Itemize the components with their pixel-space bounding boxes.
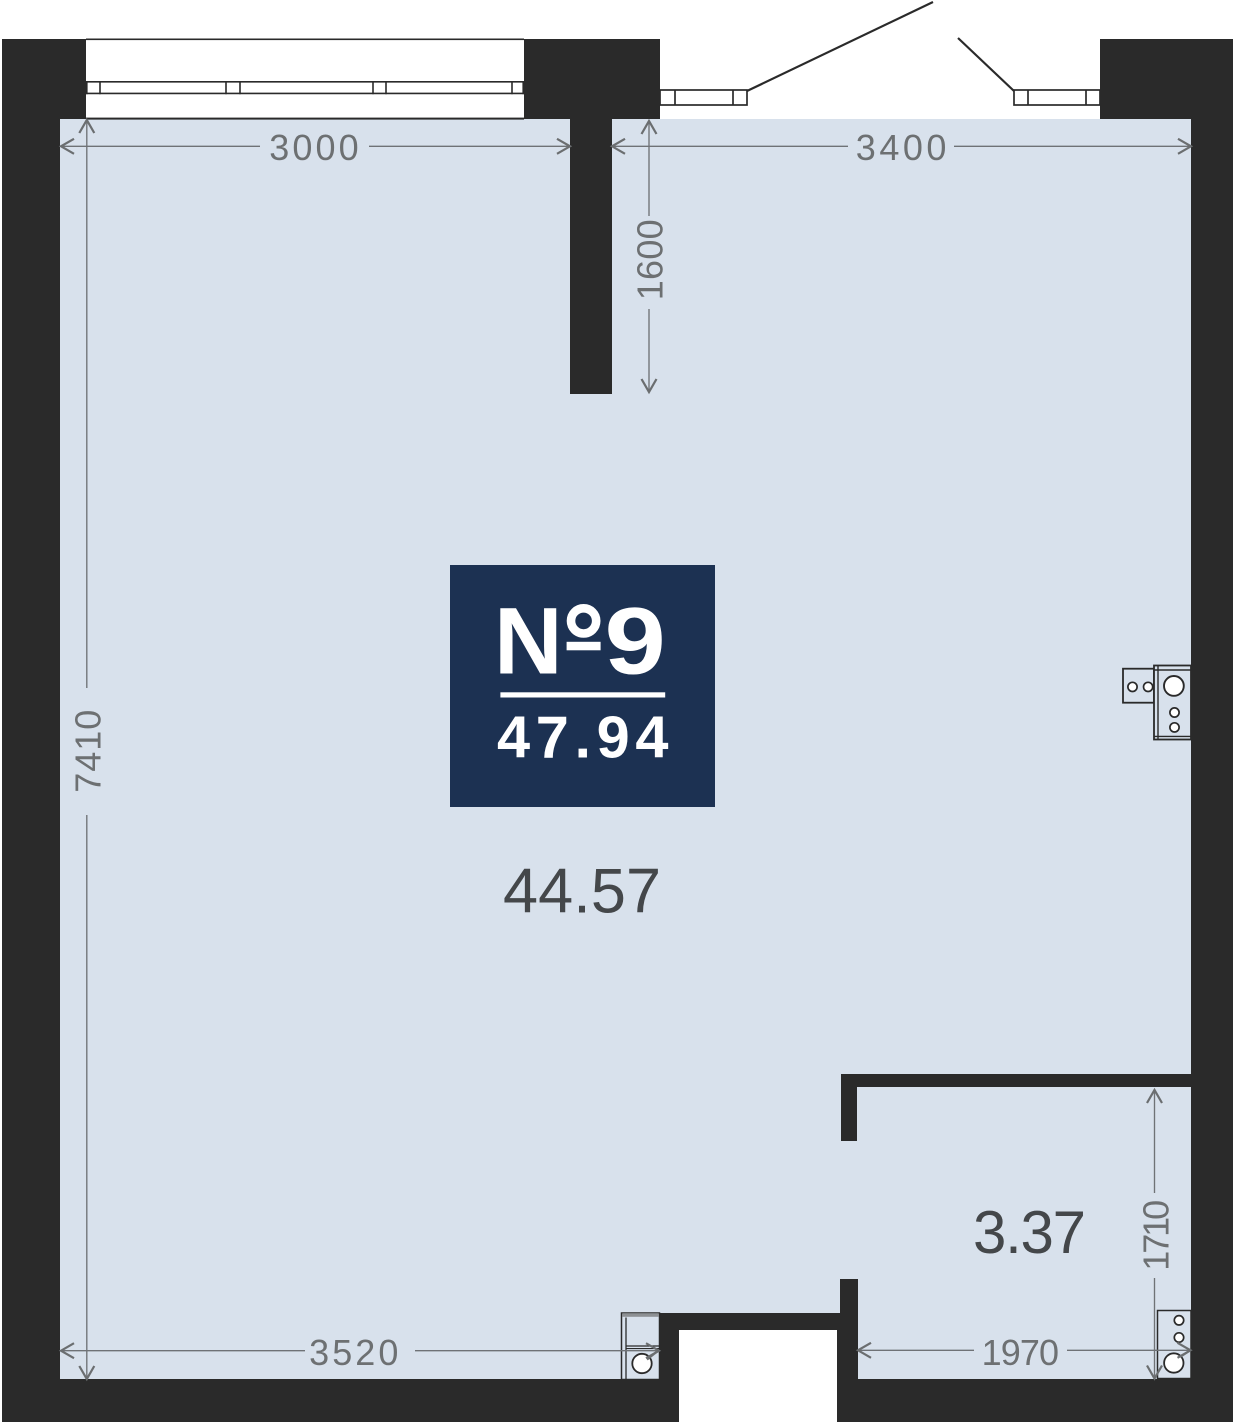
svg-text:7410: 7410 [67,710,108,793]
svg-text:47.94: 47.94 [497,703,669,770]
svg-text:1710: 1710 [1136,1200,1177,1271]
svg-text:N: N [494,588,563,694]
svg-text:1970: 1970 [982,1332,1059,1373]
svg-text:9: 9 [605,587,666,693]
svg-text:3.37: 3.37 [973,1199,1086,1266]
svg-text:1600: 1600 [629,219,670,300]
svg-text:44.57: 44.57 [503,856,661,926]
